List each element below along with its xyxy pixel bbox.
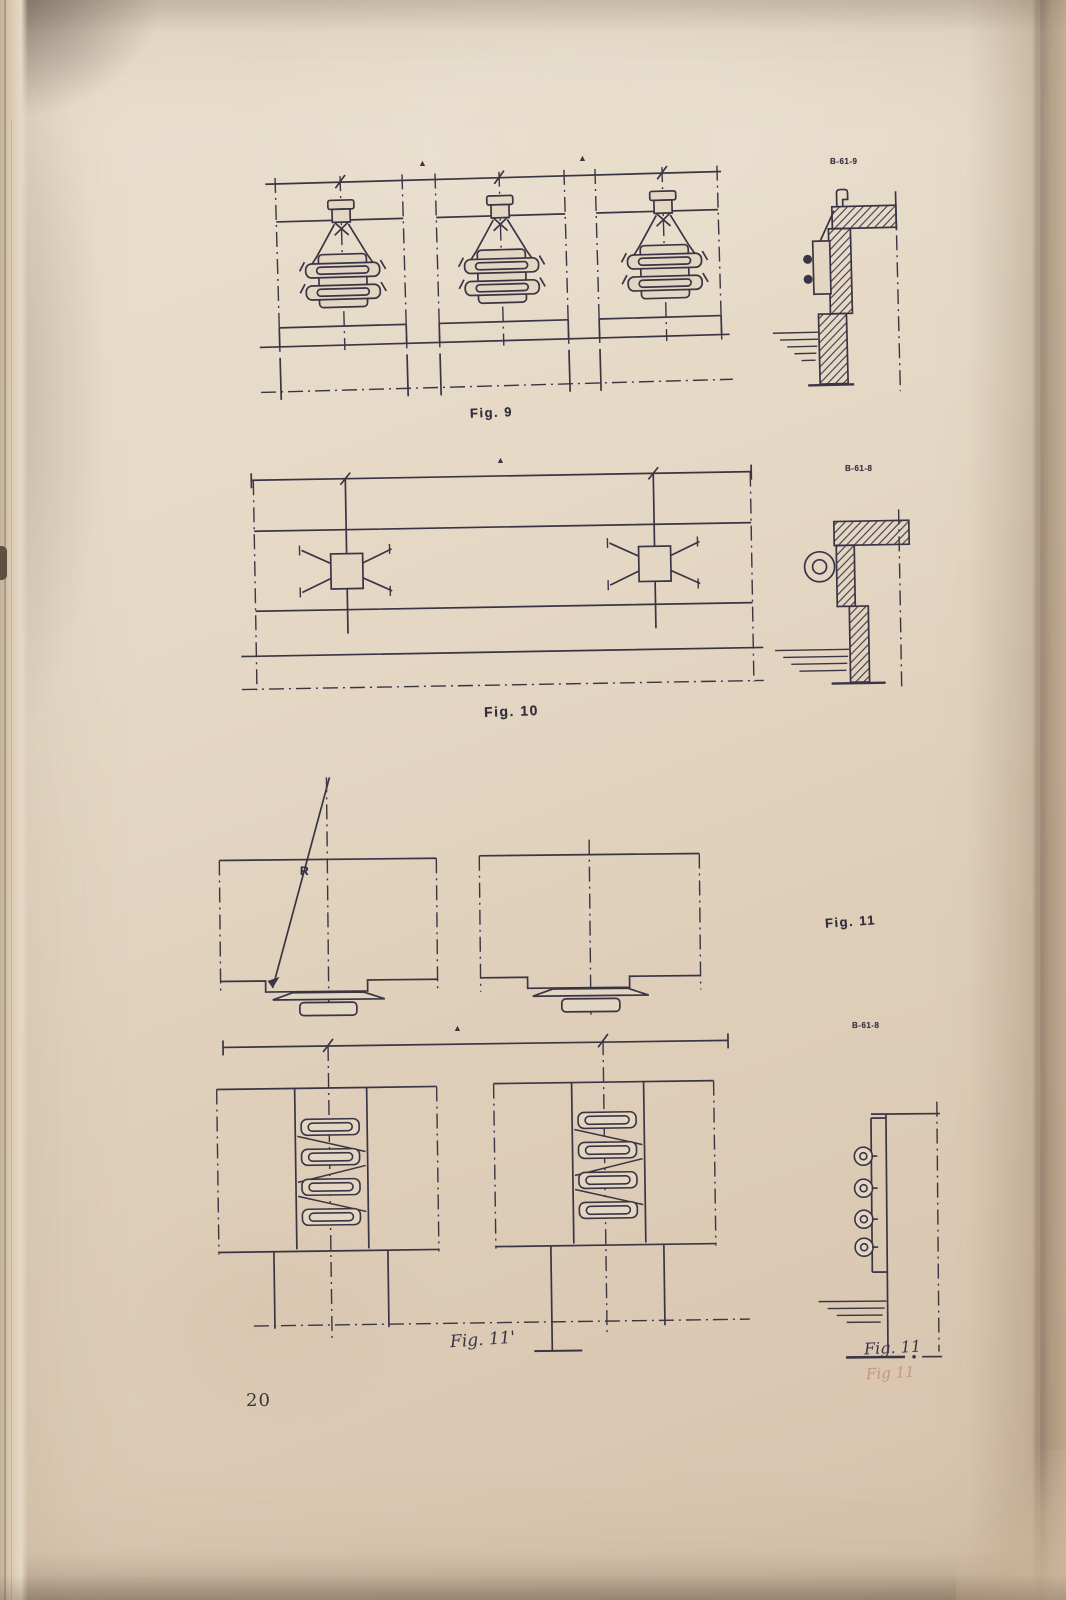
fig9-section-drawing — [769, 188, 900, 394]
scanned-book-page: ▲ ▲ B-61-9 Fig. 9 ▲ B-61-8 Fig. 10 R Fig… — [0, 0, 1066, 1600]
fig10-section-ref: B-61-8 — [845, 464, 872, 473]
page-bottom-shadow — [0, 1574, 1066, 1600]
fig9-elevation-drawing — [255, 164, 733, 400]
technical-drawings-svg — [0, 0, 1066, 1600]
page-edge-nick — [0, 546, 7, 580]
book-right-edge — [1032, 0, 1066, 1600]
fig11-radius-label: R — [300, 864, 310, 878]
fig11-section-ref: B-61-8 — [852, 1021, 879, 1030]
page-left-edge-line — [11, 120, 12, 1600]
fig11-section-drawing — [817, 1102, 942, 1360]
page-left-edge-line — [4, 0, 6, 1600]
fig9-section-ref: B-61-9 — [830, 157, 857, 166]
fig10-caption: Fig. 10 — [484, 702, 539, 720]
fig9-caption: Fig. 9 — [470, 404, 513, 420]
fig10-plan-drawing — [238, 464, 764, 690]
page-number: 20 — [246, 1390, 271, 1411]
fig10-delta-marker: ▲ — [496, 455, 505, 465]
fig11-section-caption-ghost: Fig 11 — [866, 1363, 916, 1384]
fig11-channel-views-drawing — [218, 773, 700, 1019]
page-right-shading — [968, 0, 1038, 1600]
fig11-delta-marker: ▲ — [453, 1023, 462, 1033]
fig9-delta-marker-1: ▲ — [418, 158, 427, 168]
fig10-section-drawing — [773, 509, 912, 693]
fig11-section-caption: Fig. 11 — [864, 1337, 922, 1359]
fig9-delta-marker-2: ▲ — [578, 153, 587, 163]
fig11-support-stacks-drawing — [216, 1032, 750, 1355]
